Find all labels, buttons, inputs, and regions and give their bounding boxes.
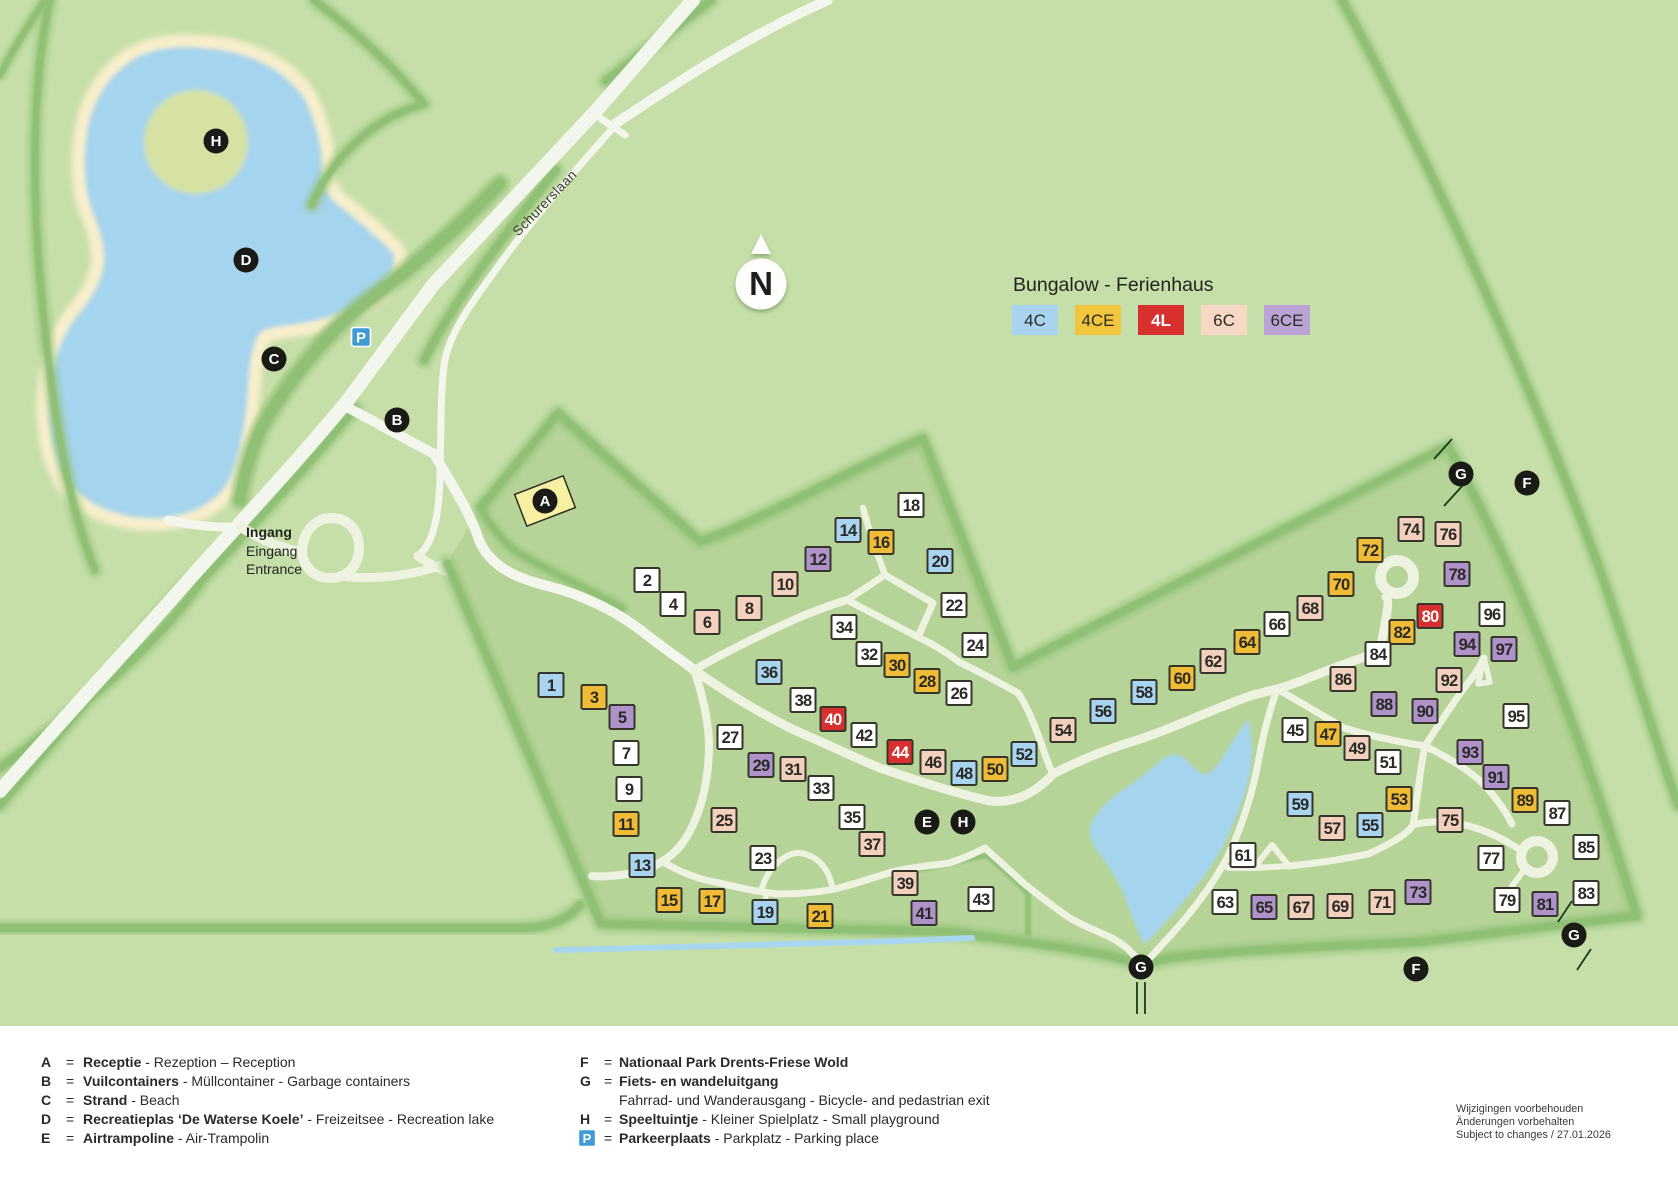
svg-text:55: 55 [1362,817,1379,835]
svg-text:H: H [211,133,222,150]
svg-text:=: = [66,1130,74,1146]
svg-text:Änderungen vorbehalten: Änderungen vorbehalten [1456,1116,1574,1128]
svg-text:75: 75 [1442,812,1459,830]
svg-text:6C: 6C [1213,311,1235,330]
svg-text:4L: 4L [1151,311,1171,330]
svg-text:2: 2 [643,572,652,590]
svg-text:44: 44 [892,744,910,762]
svg-text:20: 20 [932,553,949,571]
svg-text:3: 3 [590,689,599,707]
svg-text:16: 16 [873,534,890,552]
svg-text:=: = [604,1054,612,1070]
svg-text:Strand - Beach: Strand - Beach [83,1092,179,1108]
svg-text:76: 76 [1440,526,1457,544]
svg-text:Fiets- en wandeluitgang: Fiets- en wandeluitgang [619,1073,778,1089]
svg-text:25: 25 [716,812,733,830]
svg-text:6CE: 6CE [1270,311,1303,330]
svg-text:59: 59 [1292,796,1309,814]
svg-text:96: 96 [1484,606,1501,624]
svg-text:64: 64 [1239,634,1257,652]
svg-text:17: 17 [704,893,721,911]
svg-text:=: = [66,1111,74,1127]
svg-text:41: 41 [916,905,933,923]
svg-text:B: B [41,1073,51,1089]
svg-text:=: = [66,1054,74,1070]
svg-text:Speeltuintje - Kleiner Spielpl: Speeltuintje - Kleiner Spielplatz - Smal… [619,1111,940,1127]
svg-text:53: 53 [1391,791,1408,809]
svg-text:P: P [583,1131,592,1146]
svg-text:B: B [392,412,403,429]
svg-text:Eingang: Eingang [246,543,297,559]
svg-text:36: 36 [761,664,778,682]
svg-text:86: 86 [1335,671,1352,689]
svg-text:68: 68 [1302,600,1319,618]
svg-text:27: 27 [722,729,739,747]
svg-text:E: E [922,814,932,831]
svg-text:D: D [41,1111,51,1127]
svg-text:87: 87 [1549,805,1566,823]
svg-text:32: 32 [861,646,878,664]
svg-text:G: G [1568,927,1580,944]
svg-text:Wijzigingen voorbehouden: Wijzigingen voorbehouden [1456,1103,1583,1115]
svg-text:18: 18 [903,497,920,515]
svg-text:48: 48 [956,765,973,783]
svg-text:Nationaal Park Drents-Friese W: Nationaal Park Drents-Friese Wold [619,1054,848,1070]
svg-text:29: 29 [753,757,770,775]
svg-text:97: 97 [1496,641,1513,659]
svg-text:70: 70 [1333,576,1350,594]
svg-text:74: 74 [1403,521,1421,539]
svg-text:A: A [41,1054,51,1070]
svg-text:90: 90 [1417,703,1434,721]
svg-text:66: 66 [1269,616,1286,634]
svg-text:7: 7 [622,745,631,763]
svg-text:E: E [41,1130,50,1146]
svg-text:39: 39 [897,875,914,893]
svg-text:C: C [269,351,280,368]
svg-text:73: 73 [1410,884,1427,902]
svg-text:40: 40 [825,711,842,729]
svg-text:83: 83 [1578,885,1595,903]
svg-text:9: 9 [625,781,634,799]
svg-text:F: F [580,1054,589,1070]
svg-text:=: = [604,1111,612,1127]
svg-text:33: 33 [813,780,830,798]
svg-text:C: C [41,1092,51,1108]
svg-text:65: 65 [1256,899,1273,917]
svg-text:Ingang: Ingang [246,524,292,540]
svg-text:4CE: 4CE [1081,311,1114,330]
svg-text:34: 34 [836,619,854,637]
svg-text:93: 93 [1462,744,1479,762]
svg-text:57: 57 [1324,820,1341,838]
svg-text:G: G [580,1073,591,1089]
svg-text:81: 81 [1537,896,1554,914]
svg-text:58: 58 [1136,684,1153,702]
svg-text:Vuilcontainers - Müllcontainer: Vuilcontainers - Müllcontainer - Garbage… [83,1073,410,1089]
svg-text:6: 6 [703,614,712,632]
svg-text:80: 80 [1422,608,1439,626]
svg-text:11: 11 [618,816,634,834]
svg-text:21: 21 [812,908,829,926]
svg-text:88: 88 [1376,696,1393,714]
svg-text:5: 5 [618,709,627,727]
svg-text:1: 1 [547,677,556,695]
svg-text:35: 35 [844,809,861,827]
svg-text:62: 62 [1205,653,1222,671]
svg-text:12: 12 [810,551,827,569]
svg-text:19: 19 [757,904,774,922]
svg-text:46: 46 [925,754,942,772]
svg-text:72: 72 [1362,542,1379,560]
svg-text:56: 56 [1095,703,1112,721]
svg-text:P: P [356,330,366,347]
svg-text:54: 54 [1055,722,1073,740]
svg-text:67: 67 [1293,899,1310,917]
svg-text:78: 78 [1449,566,1466,584]
svg-text:Recreatieplas ‘De Waterse Koel: Recreatieplas ‘De Waterse Koele’ - Freiz… [83,1111,494,1127]
svg-text:85: 85 [1578,839,1595,857]
svg-text:Entrance: Entrance [246,561,302,577]
svg-text:=: = [66,1092,74,1108]
svg-text:G: G [1135,959,1147,976]
svg-text:F: F [1522,475,1531,492]
svg-text:Bungalow - Ferienhaus: Bungalow - Ferienhaus [1013,274,1214,296]
svg-text:84: 84 [1370,646,1388,664]
svg-text:H: H [958,814,969,831]
svg-text:92: 92 [1441,672,1458,690]
svg-text:82: 82 [1394,624,1411,642]
svg-text:Subject to changes / 27.01.202: Subject to changes / 27.01.2026 [1456,1129,1611,1141]
svg-text:38: 38 [795,692,812,710]
svg-text:=: = [604,1073,612,1089]
svg-text:4C: 4C [1024,311,1046,330]
svg-text:77: 77 [1483,850,1500,868]
svg-text:Fahrrad- und Wanderausgang - B: Fahrrad- und Wanderausgang - Bicycle- an… [619,1092,990,1108]
svg-text:13: 13 [634,857,651,875]
svg-text:Parkeerplaats - Parkplatz - Pa: Parkeerplaats - Parkplatz - Parking plac… [619,1130,879,1146]
svg-text:51: 51 [1380,754,1397,772]
svg-text:91: 91 [1488,769,1505,787]
svg-text:42: 42 [856,727,873,745]
svg-text:28: 28 [919,673,936,691]
svg-text:F: F [1411,961,1420,978]
svg-text:22: 22 [946,597,963,615]
svg-text:94: 94 [1459,636,1477,654]
svg-text:26: 26 [951,685,968,703]
svg-text:23: 23 [755,850,772,868]
svg-text:N: N [749,265,773,302]
svg-text:31: 31 [785,761,802,779]
svg-text:G: G [1455,466,1467,483]
svg-text:47: 47 [1320,726,1337,744]
svg-text:H: H [580,1111,590,1127]
svg-text:8: 8 [745,600,754,618]
svg-text:45: 45 [1287,722,1304,740]
svg-text:10: 10 [777,576,794,594]
svg-text:50: 50 [987,761,1004,779]
svg-text:=: = [604,1130,612,1146]
svg-text:69: 69 [1332,898,1349,916]
svg-text:D: D [241,252,252,269]
svg-text:61: 61 [1235,847,1252,865]
svg-text:15: 15 [661,892,678,910]
svg-text:52: 52 [1016,746,1033,764]
svg-text:A: A [540,493,551,510]
svg-text:79: 79 [1499,892,1516,910]
svg-text:Airtrampoline - Air-Trampolin: Airtrampoline - Air-Trampolin [83,1130,269,1146]
svg-text:24: 24 [967,637,985,655]
svg-text:71: 71 [1374,894,1391,912]
svg-text:49: 49 [1349,740,1366,758]
svg-text:60: 60 [1174,670,1191,688]
svg-text:89: 89 [1517,792,1534,810]
svg-text:63: 63 [1217,894,1234,912]
svg-text:14: 14 [840,522,858,540]
svg-text:30: 30 [889,657,906,675]
svg-text:Receptie - Rezeption – Recepti: Receptie - Rezeption – Reception [83,1054,295,1070]
svg-text:37: 37 [864,836,881,854]
svg-text:=: = [66,1073,74,1089]
svg-text:95: 95 [1508,708,1525,726]
svg-text:43: 43 [973,891,990,909]
